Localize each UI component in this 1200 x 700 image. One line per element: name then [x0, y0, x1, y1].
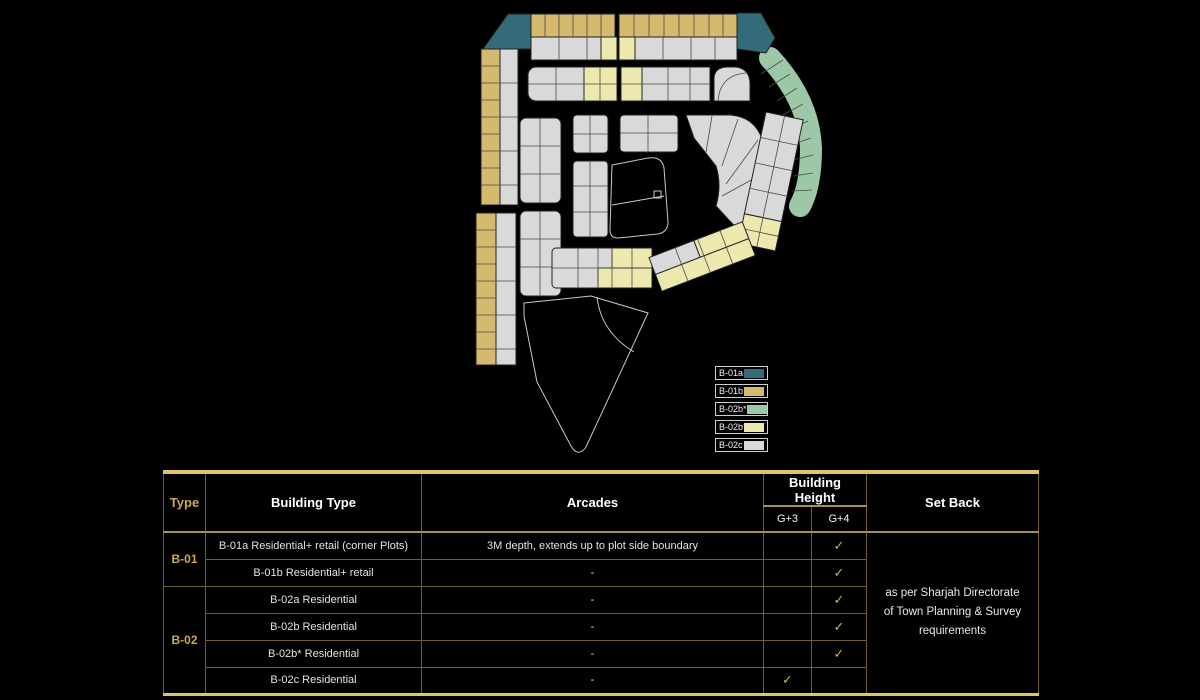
arcades-cell: - — [422, 586, 764, 613]
legend-label: B-02b — [719, 423, 743, 432]
arcades-cell: 3M depth, extends up to plot side bounda… — [422, 532, 764, 559]
header-arcades: Arcades — [422, 472, 764, 532]
header-g4: G+4 — [812, 506, 867, 532]
legend-swatch — [744, 387, 764, 396]
arcades-cell: - — [422, 640, 764, 667]
legend-swatch — [744, 441, 764, 450]
g3-cell — [764, 559, 812, 586]
g4-cell — [812, 667, 867, 694]
g3-cell — [764, 613, 812, 640]
header-building-height: Building Height — [764, 472, 867, 506]
group-label-b01: B-01 — [164, 532, 206, 586]
legend-item: B-01b — [715, 384, 768, 398]
legend-item: B-02b* — [715, 402, 768, 416]
regulations-table: Type Building Type Arcades Building Heig… — [163, 470, 1039, 696]
building-type-cell: B-02b Residential — [206, 613, 422, 640]
plot-row-gray-top — [531, 37, 737, 60]
set-back-note: as per Sharjah Directorate of Town Plann… — [867, 532, 1039, 694]
plot-corner-teal-left — [483, 14, 531, 49]
legend-item: B-02b — [715, 420, 768, 434]
g3-cell — [764, 640, 812, 667]
g4-cell: ✓ — [812, 640, 867, 667]
table-row: B-01 B-01a Residential+ retail (corner P… — [164, 532, 1039, 559]
arcades-cell: - — [422, 559, 764, 586]
header-g3: G+3 — [764, 506, 812, 532]
header-set-back: Set Back — [867, 472, 1039, 532]
plot-row-gold-top — [531, 14, 737, 37]
g3-cell — [764, 586, 812, 613]
legend-label: B-02b* — [719, 405, 747, 414]
legend-item: B-02c — [715, 438, 768, 452]
building-type-cell: B-02b* Residential — [206, 640, 422, 667]
group-label-b02: B-02 — [164, 586, 206, 694]
building-type-cell: B-02a Residential — [206, 586, 422, 613]
arcades-cell: - — [422, 613, 764, 640]
legend-swatch — [747, 405, 767, 414]
building-type-cell: B-01b Residential+ retail — [206, 559, 422, 586]
header-type: Type — [164, 472, 206, 532]
plot-band-diagonal — [649, 222, 755, 291]
plot-strip-left-upper — [481, 49, 518, 205]
park-inner-arc — [597, 297, 634, 352]
header-building-type: Building Type — [206, 472, 422, 532]
building-type-cell: B-01a Residential+ retail (corner Plots) — [206, 532, 422, 559]
legend: B-01a B-01b B-02b* B-02b B-02c — [715, 366, 768, 452]
building-type-cell: B-02c Residential — [206, 667, 422, 694]
plot-strip-left-lower — [476, 213, 516, 365]
legend-swatch — [744, 369, 764, 378]
plot-band-second — [528, 67, 750, 101]
g4-cell: ✓ — [812, 613, 867, 640]
g3-cell: ✓ — [764, 667, 812, 694]
plot-corner-arc — [714, 67, 750, 101]
legend-label: B-01b — [719, 387, 743, 396]
g3-cell — [764, 532, 812, 559]
g4-cell: ✓ — [812, 586, 867, 613]
legend-swatch — [744, 423, 764, 432]
plot-corner-teal-right — [737, 13, 775, 53]
legend-label: B-02c — [719, 441, 743, 450]
arcades-cell: - — [422, 667, 764, 694]
legend-item: B-01a — [715, 366, 768, 380]
g4-cell: ✓ — [812, 559, 867, 586]
g4-cell: ✓ — [812, 532, 867, 559]
park-outline — [524, 296, 648, 452]
plot-block-lower-middle — [552, 248, 652, 288]
legend-label: B-01a — [719, 369, 743, 378]
